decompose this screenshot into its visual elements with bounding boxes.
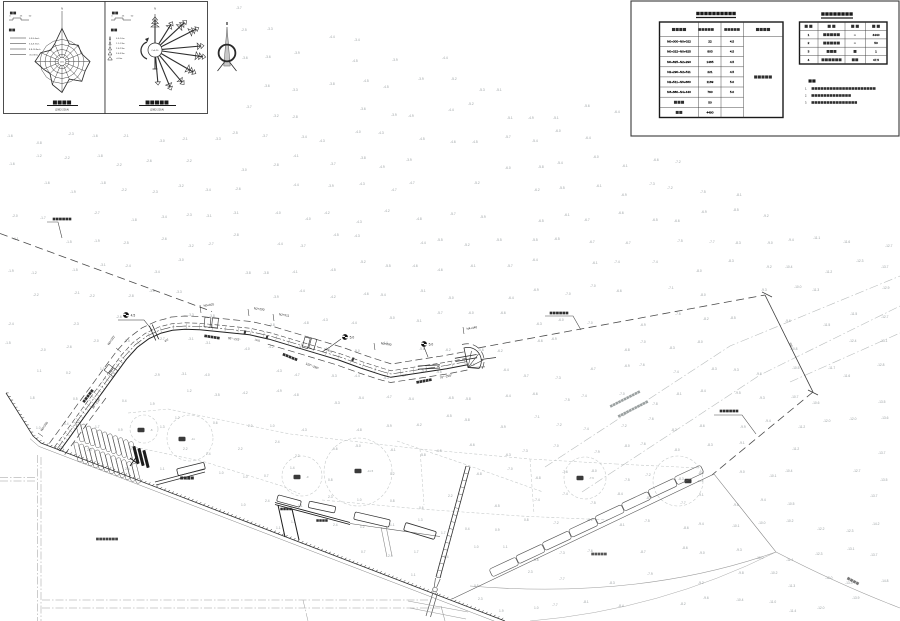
svg-text:0.9: 0.9 [118,428,123,432]
svg-text:-12.7: -12.7 [885,244,893,248]
svg-text:4.5: 4.5 [131,313,136,317]
svg-text:-8.3: -8.3 [669,346,675,350]
svg-text:-3.6: -3.6 [264,84,270,88]
svg-text:1.9: 1.9 [499,609,504,613]
svg-text:-6.9: -6.9 [701,210,707,214]
svg-text:-6.0: -6.0 [468,311,474,315]
svg-text:-10.2: -10.2 [786,519,794,523]
svg-text:-3.3: -3.3 [176,290,182,294]
svg-text:-7.5: -7.5 [590,501,596,505]
svg-text:-2.1: -2.1 [74,291,80,295]
svg-text:-9.4: -9.4 [788,238,794,242]
svg-text:2.4: 2.4 [275,440,280,444]
svg-text:-10.0: -10.0 [758,521,766,525]
svg-text:-4.9: -4.9 [276,389,282,393]
svg-text:-12.3: -12.3 [846,529,854,533]
svg-text:-6.1: -6.1 [596,184,602,188]
svg-text:-9.3: -9.3 [759,396,765,400]
svg-text:-6.6: -6.6 [653,158,659,162]
svg-text:-5.1: -5.1 [507,116,513,120]
svg-text:-8.0: -8.0 [674,448,680,452]
svg-text:-10.1: -10.1 [769,474,777,478]
svg-text:1.3: 1.3 [160,425,165,429]
svg-text:-4.0: -4.0 [204,373,210,377]
svg-text:-8.7: -8.7 [640,550,646,554]
svg-text:4.5: 4.5 [730,70,735,74]
svg-text:>4.0m: >4.0m [116,57,122,60]
svg-text:1.1: 1.1 [276,526,281,530]
svg-text:-9.4: -9.4 [765,419,771,423]
svg-text:-7.2: -7.2 [675,160,681,164]
svg-text:-6.5: -6.5 [448,396,454,400]
svg-text:-6.4: -6.4 [505,394,511,398]
svg-text:-6.1: -6.1 [390,448,396,452]
svg-text:-2.4: -2.4 [8,322,14,326]
svg-text:-10.6: -10.6 [812,401,820,405]
svg-text:-7.6: -7.6 [675,312,681,316]
svg-text:-1.5: -1.5 [5,341,11,345]
svg-text:1169: 1169 [707,80,714,84]
svg-text:-10.5: -10.5 [792,366,800,370]
svg-text:-6.0: -6.0 [558,318,564,322]
svg-text:-2.1: -2.1 [182,137,188,141]
svg-text:-11.6: -11.6 [843,240,850,244]
svg-text:-3.8: -3.8 [209,314,215,318]
svg-text:-7.5: -7.5 [700,190,706,194]
svg-text:-4.4: -4.4 [354,374,360,378]
svg-text:-14.2: -14.2 [872,522,880,526]
svg-text:-7.7: -7.7 [559,577,565,581]
svg-text:-7.0: -7.0 [507,467,513,471]
svg-text:-5.9: -5.9 [500,425,506,429]
svg-text:-7.0: -7.0 [640,340,646,344]
svg-text:-4.8: -4.8 [356,428,362,432]
svg-text:-8.2: -8.2 [680,602,686,606]
svg-text:-7.0: -7.0 [565,292,571,296]
svg-text:-8.1: -8.1 [676,392,682,396]
svg-text:-2.6: -2.6 [161,237,167,241]
svg-text:-7.2: -7.2 [556,423,562,427]
svg-text:-9.0: -9.0 [767,241,773,245]
svg-text:-11.2: -11.2 [792,447,799,451]
svg-text:-9.4: -9.4 [698,522,704,526]
svg-text:-6.8: -6.8 [624,348,630,352]
svg-text:-8.2: -8.2 [703,317,709,321]
svg-text:0.6: 0.6 [213,421,218,425]
svg-text:-7.1: -7.1 [534,415,540,419]
svg-text:0.8: 0.8 [524,518,529,522]
svg-text:-5.5: -5.5 [496,238,502,242]
svg-text:-7.2: -7.2 [553,521,559,525]
svg-text:-6.6: -6.6 [469,443,475,447]
svg-text:-6.4: -6.4 [503,368,509,372]
svg-text:-1.9: -1.9 [8,269,14,273]
svg-text:-9.2: -9.2 [763,214,769,218]
svg-text:-3.8: -3.8 [269,323,275,327]
svg-text:-11.3: -11.3 [788,584,795,588]
svg-text:-4.9: -4.9 [379,165,385,169]
svg-text:-6.5: -6.5 [652,218,658,222]
svg-text:0.9: 0.9 [495,528,500,532]
svg-text:-3.9: -3.9 [391,113,397,117]
svg-text:-7.3: -7.3 [559,551,565,555]
svg-text:-2.1: -2.1 [123,134,129,138]
svg-text:-1.8: -1.8 [97,154,103,158]
svg-text:-11.2: -11.2 [798,425,805,429]
svg-text:-11.1: -11.1 [813,236,820,240]
svg-text:50: 50 [874,41,878,45]
svg-text:-5.6: -5.6 [478,348,484,352]
svg-text:-7.6: -7.6 [648,417,654,421]
svg-text:-13.1: -13.1 [880,339,888,343]
svg-text:-4.0: -4.0 [305,217,311,221]
svg-text:-4.2: -4.2 [324,211,330,215]
svg-text:1.: 1. [805,87,808,91]
svg-text:-11.5: -11.5 [823,323,830,327]
svg-text:-6.1: -6.1 [592,261,598,265]
svg-text:-5.7: -5.7 [505,135,511,139]
svg-text:-4.5: -4.5 [472,140,478,144]
svg-text:(1982-2014): (1982-2014) [55,108,69,112]
svg-text:-5.8: -5.8 [464,418,470,422]
svg-text:-3.9: -3.9 [406,158,412,162]
svg-text:-7.0: -7.0 [590,284,596,288]
svg-text:1: 1 [808,33,810,37]
svg-text:-14.8: -14.8 [881,579,889,583]
svg-text:-2.6: -2.6 [116,315,122,319]
svg-text:0.4: 0.4 [465,527,470,531]
svg-text:-3.4: -3.4 [205,188,211,192]
svg-text:-13.7: -13.7 [870,553,878,557]
svg-text:2.4: 2.4 [333,523,338,527]
svg-text:-5.4: -5.4 [408,397,414,401]
svg-text:1: 1 [875,50,877,54]
svg-text:-3.1: -3.1 [233,211,239,215]
svg-text:-2.2: -2.2 [121,188,127,192]
svg-text:-6.7: -6.7 [589,240,595,244]
svg-text:-4.3: -4.3 [356,220,362,224]
svg-text:-12.7: -12.7 [881,315,889,319]
svg-text:-4.8: -4.8 [416,217,422,221]
svg-text:-4.2: -4.2 [384,209,390,213]
svg-text:-6.2: -6.2 [534,188,540,192]
svg-text:-4.3: -4.3 [354,234,360,238]
svg-text:1465: 1465 [707,60,714,64]
svg-text:-8.1: -8.1 [583,600,589,604]
svg-text:-9.9: -9.9 [740,425,746,429]
svg-text:-2.2: -2.2 [64,156,70,160]
svg-text:-7.8: -7.8 [652,402,658,406]
svg-text:-9.3: -9.3 [736,548,742,552]
svg-text:-2.8: -2.8 [233,233,239,237]
svg-text:-3.4: -3.4 [301,135,307,139]
svg-text:0.6: 0.6 [333,447,338,451]
svg-text:-3.4: -3.4 [161,215,167,219]
svg-text:-9: -9 [306,475,309,479]
svg-text:-2.3: -2.3 [73,322,79,326]
svg-text:-2.2: -2.2 [33,293,39,297]
svg-text:-8.3: -8.3 [735,241,741,245]
svg-text:-4.4: -4.4 [420,241,426,245]
svg-text:1.1: 1.1 [160,467,165,471]
svg-text:-7.7: -7.7 [709,240,715,244]
svg-text:50: 50 [708,100,712,104]
svg-text:1.7: 1.7 [441,531,446,535]
svg-text:4490: 4490 [707,111,714,115]
svg-text:-1.8: -1.8 [100,181,106,185]
svg-text:-7.7: -7.7 [552,603,558,607]
svg-text:-11.0: -11.0 [769,600,776,604]
svg-text:-1.6: -1.6 [44,181,50,185]
svg-text:2.2: 2.2 [238,447,243,451]
svg-text:-13.5: -13.5 [880,478,888,482]
svg-text:-8.0: -8.0 [697,340,703,344]
svg-text:-4.3: -4.3 [322,318,328,322]
svg-text:-5.2: -5.2 [451,77,457,81]
svg-text:-8.3: -8.3 [678,477,684,481]
svg-text:-4.8: -4.8 [293,393,299,397]
svg-text:-4.4: -4.4 [299,289,305,293]
svg-text:-5.0: -5.0 [389,316,395,320]
svg-text:-4.3: -4.3 [359,182,365,186]
svg-text:-9.6: -9.6 [756,372,762,376]
svg-text:5.0: 5.0 [730,90,735,94]
svg-text:-7.3: -7.3 [555,376,561,380]
svg-text:-1.6: -1.6 [7,134,13,138]
svg-text:-3.2: -3.2 [178,184,184,188]
svg-text:-5.4: -5.4 [532,139,538,143]
svg-text:0.7: 0.7 [264,474,269,478]
svg-text:-4.5: -4.5 [363,79,369,83]
svg-text:-3.7: -3.7 [246,105,252,109]
svg-text:2.2: 2.2 [448,494,453,498]
svg-text:-6.5: -6.5 [554,237,560,241]
svg-text:-7.4: -7.4 [583,427,589,431]
svg-text:-8.6: -8.6 [682,546,688,550]
svg-text:-6.6: -6.6 [537,339,543,343]
svg-text:-10.2: -10.2 [770,571,778,575]
svg-text:-4.3: -4.3 [378,131,384,135]
svg-text:1.0: 1.0 [357,498,362,502]
svg-text:-11.3: -11.3 [812,288,819,292]
svg-text:-3.0: -3.0 [149,289,155,293]
svg-text:-13.6: -13.6 [881,416,889,420]
svg-text:-6.7: -6.7 [584,218,590,222]
svg-text:-9.6: -9.6 [733,503,739,507]
svg-text:-11: -11 [191,437,195,441]
svg-text:2.4: 2.4 [388,554,393,558]
svg-text:-6.3: -6.3 [536,322,542,326]
svg-text:-6.3: -6.3 [505,453,511,457]
svg-text:-5.7: -5.7 [523,374,529,378]
svg-text:-3.7: -3.7 [262,134,268,138]
svg-text:-9.0: -9.0 [699,551,705,555]
svg-text:4.5: 4.5 [730,40,735,44]
svg-text:-2.8: -2.8 [273,163,279,167]
svg-text:-5.5: -5.5 [437,238,443,242]
svg-text:-8.4: -8.4 [700,389,706,393]
svg-text:-6.5: -6.5 [494,504,500,508]
svg-text:N3+680~N4+440: N3+680~N4+440 [667,90,691,94]
svg-text:-3.4: -3.4 [154,270,160,274]
svg-text:2.4: 2.4 [265,499,270,503]
svg-text:1.0: 1.0 [474,545,479,549]
svg-text:-3.1: -3.1 [188,337,194,341]
svg-text:-6.2: -6.2 [416,423,422,427]
svg-text:-7.9: -7.9 [647,572,653,576]
svg-text:-4.5: -4.5 [383,85,389,89]
svg-text:-7.6: -7.6 [589,476,594,480]
svg-text:-3.9: -3.9 [294,51,300,55]
svg-text:-4.6: -4.6 [437,268,443,272]
svg-text:1.4: 1.4 [290,466,295,470]
svg-text:-5.1: -5.1 [553,116,559,120]
svg-text:N0+000~N0+022: N0+000~N0+022 [667,40,691,44]
svg-text:N: N [154,7,156,11]
svg-text:1.8: 1.8 [30,396,35,400]
svg-text:-5.8: -5.8 [420,453,426,457]
svg-text:-3.0: -3.0 [159,139,165,143]
svg-text:1.1-1.9m: 1.1-1.9m [116,43,125,45]
svg-text:-3.1: -3.1 [181,372,187,376]
svg-text:-2.8: -2.8 [128,294,134,298]
svg-text:-7.9: -7.9 [594,450,600,454]
svg-text:-3.4: -3.4 [354,38,360,42]
svg-text:4.5: 4.5 [730,50,735,54]
svg-text:-9.1: -9.1 [739,441,745,445]
svg-text:-2.7: -2.7 [94,211,100,215]
svg-text:-9.0: -9.0 [739,470,745,474]
svg-text:N0+825~N2+290: N0+825~N2+290 [667,60,691,64]
svg-text:-1.9: -1.9 [94,239,100,243]
svg-text:-11.5: -11.5 [367,469,374,473]
svg-text:221: 221 [707,70,712,74]
svg-text:-3.6: -3.6 [360,107,366,111]
svg-text:-5.5: -5.5 [559,186,565,190]
svg-text:-3.7: -3.7 [236,6,242,10]
svg-text:1.1: 1.1 [503,545,508,549]
svg-text:-3.1: -3.1 [205,341,211,345]
svg-text:-2.6: -2.6 [66,345,72,349]
svg-text:-6.6: -6.6 [674,219,680,223]
svg-text:-9.3: -9.3 [733,368,739,372]
svg-text:-1.6: -1.6 [9,162,15,166]
svg-text:-3.7: -3.7 [300,244,306,248]
svg-text:-4.3: -4.3 [319,139,325,143]
svg-text:-6.0: -6.0 [505,166,511,170]
svg-text:-12.8: -12.8 [877,363,885,367]
svg-text:-8.6: -8.6 [683,526,689,530]
svg-text:-13.7: -13.7 [878,451,886,455]
svg-text:N0+022~N0+825: N0+022~N0+825 [667,50,691,54]
svg-text:-6.7: -6.7 [625,241,631,245]
svg-text:-4.3: -4.3 [301,428,307,432]
svg-text:-11.4: -11.4 [789,609,796,613]
svg-text:2.3: 2.3 [478,597,483,601]
svg-text:-8.3: -8.3 [609,581,615,585]
svg-text:-10.4: -10.4 [785,265,793,269]
svg-text:-5.5: -5.5 [532,238,538,242]
svg-text:-7.4: -7.4 [581,394,587,398]
svg-text:-13.7: -13.7 [881,265,889,269]
svg-text:-12.0: -12.0 [823,419,831,423]
svg-text:-3.8: -3.8 [245,271,251,275]
svg-text:-4.4: -4.4 [277,242,283,246]
svg-text:-6.5: -6.5 [538,219,544,223]
svg-text:-5.1: -5.1 [496,88,502,92]
svg-text:-6.9: -6.9 [551,337,557,341]
svg-text:-7.5: -7.5 [624,478,630,482]
svg-text:-7.4: -7.4 [614,260,620,264]
svg-text:2.2: 2.2 [183,447,188,451]
svg-text:-3.9: -3.9 [392,58,398,62]
svg-text:-12.0: -12.0 [817,606,825,610]
svg-text:-4.8: -4.8 [303,321,309,325]
svg-text:-5.2: -5.2 [468,102,474,106]
svg-text:-7.4: -7.4 [562,492,568,496]
svg-text:-7.7: -7.7 [680,501,686,505]
svg-text:-4.4: -4.4 [293,183,299,187]
svg-text:-13.1: -13.1 [847,547,855,551]
svg-text:-11.5: -11.5 [850,312,857,316]
svg-text:-7.6: -7.6 [640,442,646,446]
svg-text:-8.1: -8.1 [736,193,742,197]
svg-text:2.0-2.9m: 2.0-2.9m [116,48,125,50]
svg-text:-5.7: -5.7 [450,212,456,216]
svg-text:-13.5: -13.5 [878,400,886,404]
svg-text:-5.3: -5.3 [479,88,485,92]
svg-text:-4.4: -4.4 [442,56,448,60]
svg-text:-5.3: -5.3 [334,401,340,405]
svg-text:-1.6: -1.6 [92,134,98,138]
svg-text:-2.4: -2.4 [125,264,131,268]
svg-text:N: N [61,7,63,11]
svg-text:-6.1: -6.1 [564,213,570,217]
svg-text:-7.5: -7.5 [677,239,683,243]
svg-text:0.5: 0.5 [73,397,78,401]
svg-text:0.7: 0.7 [361,550,366,554]
svg-text:-5.3: -5.3 [331,374,337,378]
svg-text:-6.9: -6.9 [624,364,630,368]
svg-text:-1.5: -1.5 [66,240,72,244]
svg-text:-2.3: -2.3 [152,190,158,194]
svg-text:-12.3: -12.3 [856,259,864,263]
svg-text:-7.4: -7.4 [673,370,679,374]
svg-text:-4.0: -4.0 [355,130,361,134]
svg-text:-12.3: -12.3 [815,552,823,556]
svg-text:-6.4: -6.4 [585,136,591,140]
svg-text:-4.7: -4.7 [409,181,415,185]
svg-text:-3.8: -3.8 [329,82,335,86]
svg-text:-5.2: -5.2 [474,181,480,185]
svg-text:-5.4: -5.4 [557,161,563,165]
svg-text:1.1: 1.1 [411,573,416,577]
svg-text:-6.4: -6.4 [508,296,514,300]
svg-text:-6.4: -6.4 [614,110,620,114]
svg-text:-3.2: -3.2 [273,114,279,118]
svg-text:1.0: 1.0 [219,471,224,475]
svg-text:-9.2: -9.2 [698,581,704,585]
svg-text:-5.7: -5.7 [437,311,443,315]
svg-text:0.8: 0.8 [328,478,333,482]
svg-text:-12.7: -12.7 [853,469,861,473]
svg-text:-2.5: -2.5 [232,131,238,135]
svg-text:22: 22 [708,40,712,44]
svg-text:-5.9: -5.9 [386,424,392,428]
svg-text:-3.3: -3.3 [215,137,221,141]
svg-text:-8.6: -8.6 [699,424,705,428]
svg-text:803: 803 [707,50,712,54]
